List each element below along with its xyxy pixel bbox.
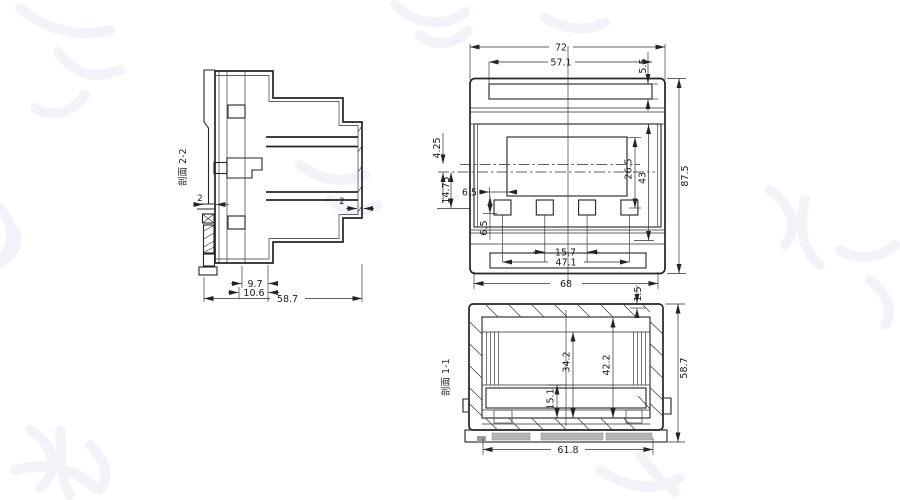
dim-terminal-depth: 15.1 [546, 388, 557, 409]
watermark [0, 5, 895, 495]
latch-window-lower [228, 216, 245, 229]
button-3 [579, 200, 596, 215]
dim-button-span: 47.1 [555, 258, 576, 269]
base-slot-1 [492, 433, 530, 440]
bottom-view: 剖面 1-1 42.2 34.2 [440, 304, 690, 456]
dim-overall-width: 72 [555, 43, 567, 54]
side-outline [215, 71, 362, 263]
front-view: 72 57.1 5.5 87.5 4.25 14.75 [432, 43, 691, 318]
dim-inner-height: 34.2 [562, 351, 573, 372]
enclosure-drawing: 剖面 2-2 [0, 0, 900, 500]
button-1 [494, 200, 511, 215]
technical-drawing-canvas: 剖面 2-2 [0, 0, 900, 500]
side-view: 剖面 2-2 [177, 70, 374, 305]
dim-overall-depth: 58.7 [679, 357, 690, 378]
base-slot-3 [606, 433, 652, 440]
dim-depth: 58.7 [277, 294, 298, 305]
dim-display-margin: 6.5 [462, 188, 477, 199]
dim-overall-height: 87.5 [680, 165, 691, 186]
dim-recess-height: 5.5 [638, 58, 649, 73]
dim-window-height: 26.5 [624, 158, 635, 179]
button-4 [621, 200, 638, 215]
base-slot-2 [541, 433, 603, 440]
side-view-label: 剖面 2-2 [177, 148, 189, 186]
din-rail-clip [197, 70, 245, 275]
lcd-window [507, 137, 627, 196]
latch-window-upper [228, 105, 245, 118]
dim-inner-width: 61.8 [557, 445, 578, 456]
release-tab [227, 158, 262, 178]
dim-face-height: 43 [638, 172, 649, 184]
dim-cavity-height: 42.2 [602, 354, 613, 375]
dim-button-drop: 6.5 [479, 220, 490, 235]
top-recess [489, 84, 652, 99]
dim-lip: 1.5 [633, 286, 644, 301]
button-2 [536, 200, 553, 215]
bottom-view-label: 剖面 1-1 [440, 358, 452, 396]
dim-center-offset: 4.25 [432, 137, 443, 158]
dim-offset-b: 10.6 [243, 288, 264, 299]
dim-button-offset: 14.75 [441, 176, 452, 203]
dim-recess-width: 57.1 [550, 58, 571, 69]
dim-front-wall: 2 [339, 197, 344, 207]
dim-base-width: 68 [560, 279, 572, 290]
dim-back-wall: 2 [197, 194, 202, 204]
